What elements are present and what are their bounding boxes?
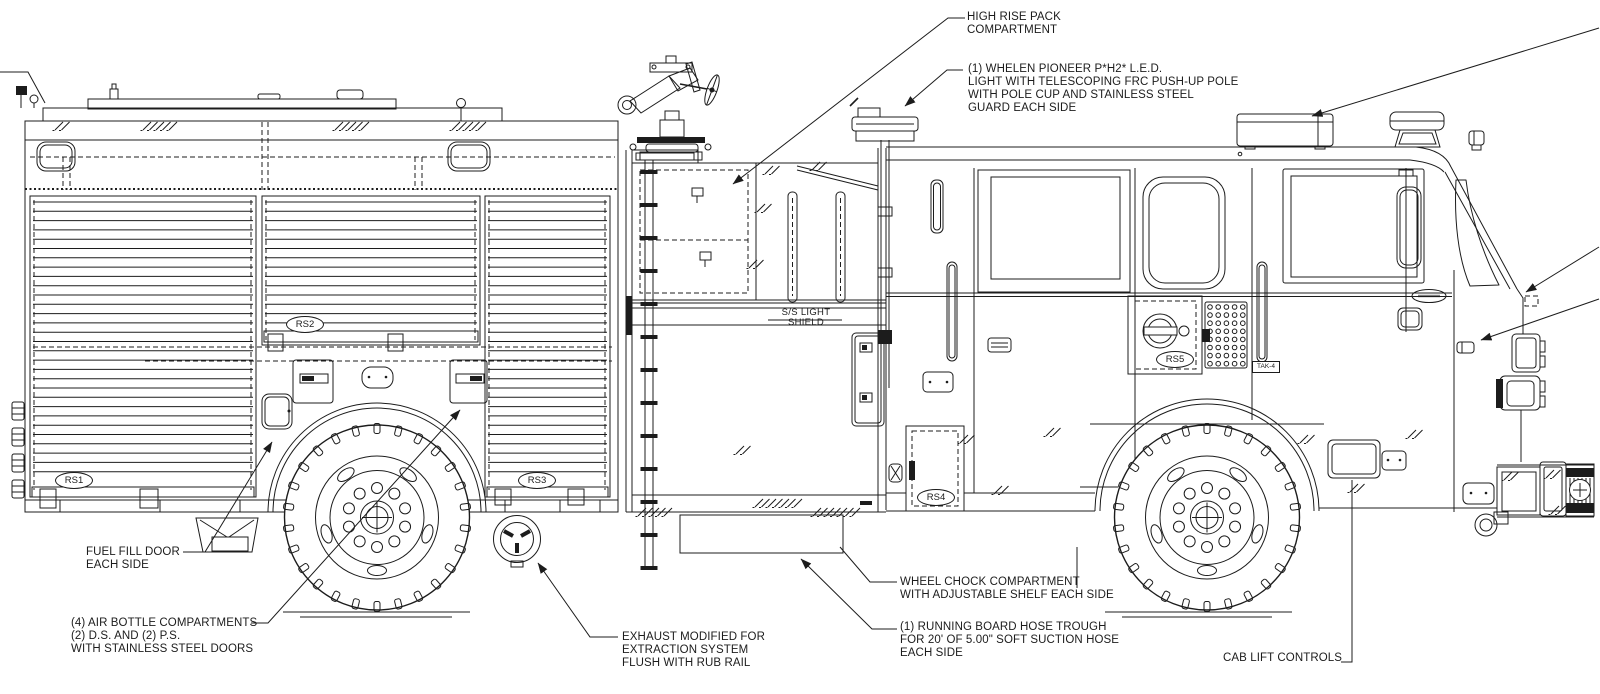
- roof-spotlight: [1469, 131, 1484, 150]
- roof-lightbar: [1390, 112, 1444, 147]
- side-mirror: [1397, 168, 1422, 332]
- crew-window: [978, 170, 1130, 292]
- label-light-shield: S/S LIGHT SHIELD: [766, 308, 846, 327]
- ground-lines: [283, 612, 1292, 617]
- front-door-window: [1283, 169, 1424, 283]
- deck-gun-monitor: [618, 56, 722, 160]
- label-rs2: RS2: [286, 316, 324, 333]
- headlight-stack: [1496, 334, 1545, 410]
- annotation-high-rise-pack: HIGH RISE PACK COMPARTMENT: [967, 11, 1061, 37]
- label-rs4: RS4: [917, 489, 955, 506]
- leader-lines: [0, 18, 1599, 662]
- annotation-cab-lift: CAB LIFT CONTROLS: [1223, 652, 1342, 665]
- cab-lift-controls-panel: [1328, 440, 1406, 478]
- annotation-wheel-chock: WHEEL CHOCK COMPARTMENT WITH ADJUSTABLE …: [900, 576, 1114, 602]
- rear-marker-lights: [12, 402, 24, 498]
- hose-trough: [680, 515, 843, 553]
- truck-drawing: HIGH RISE PACK COMPARTMENT (1) WHELEN PI…: [0, 0, 1600, 694]
- roof-storage-box: [1237, 114, 1333, 149]
- fuel-tank: [196, 518, 258, 552]
- annotation-whelen-light: (1) WHELEN PIONEER P*H2* L.E.D. LIGHT WI…: [968, 63, 1238, 115]
- label-tak4: TAK-4: [1252, 361, 1280, 373]
- annotation-fuel-fill-door: FUEL FILL DOOR EACH SIDE: [86, 546, 180, 572]
- annotation-exhaust: EXHAUST MODIFIED FOR EXTRACTION SYSTEM F…: [622, 631, 765, 670]
- label-rs5: RS5: [1156, 351, 1194, 368]
- label-rs3: RS3: [518, 472, 556, 489]
- annotation-hose-trough: (1) RUNNING BOARD HOSE TROUGH FOR 20' OF…: [900, 621, 1119, 660]
- rear-wheel: [283, 424, 470, 612]
- annotation-air-bottle: (4) AIR BOTTLE COMPARTMENTS (2) D.S. AND…: [71, 617, 257, 656]
- access-ladder: [641, 160, 658, 570]
- front-bumper: [1463, 462, 1594, 536]
- drawing-canvas: [0, 0, 1600, 694]
- label-rs1: RS1: [55, 472, 93, 489]
- pump-module: [626, 150, 886, 553]
- exhaust-outlet: [494, 516, 541, 568]
- speaker-grille: [1202, 302, 1247, 368]
- front-marker-light: [1457, 342, 1474, 353]
- front-wheel: [1113, 424, 1300, 612]
- crew-door-window: [1143, 177, 1225, 289]
